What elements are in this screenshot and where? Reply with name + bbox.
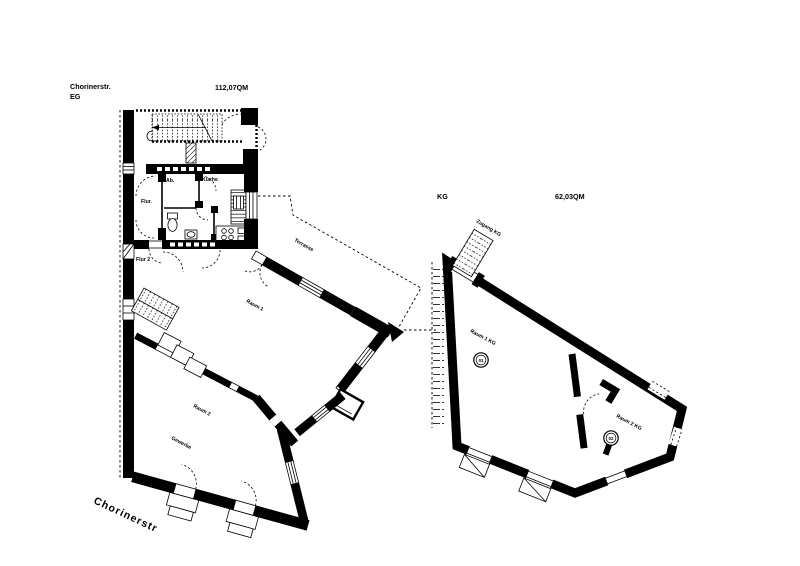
eg-floor-title: EG — [70, 92, 81, 101]
eg-divider-wall-2 — [253, 395, 298, 447]
entrance-door-swing — [176, 464, 201, 489]
flur-door-swing — [136, 176, 156, 196]
east-window — [246, 192, 257, 219]
eg-raum1-wall-b2 — [295, 393, 345, 436]
toilet-fixture — [168, 213, 178, 231]
stair-stub — [186, 143, 196, 163]
eg-stairwell-block — [136, 108, 266, 171]
kg-left-hatch — [432, 262, 444, 428]
kg-area-label: 62,03QM — [555, 192, 585, 201]
eg-flur2-stair — [131, 288, 179, 330]
eg-street-name: Chorinerstr — [92, 495, 160, 535]
floorplan-canvas: Chorinerstr. EG 112,07QM — [0, 0, 800, 566]
kg-plan: KG 62,03QM Zugang KG — [432, 192, 685, 502]
kg-floor-title: KG — [437, 192, 448, 201]
entry-door-swing — [258, 127, 266, 151]
eg-service-rooms — [136, 174, 258, 248]
eg-label-terrasse: Terrasse — [293, 238, 314, 254]
kg-marker-02: 02 — [604, 431, 618, 445]
eg-window-band — [146, 164, 258, 174]
kg-marker-01: 01 — [474, 353, 488, 367]
kg-marker-02-number: 02 — [608, 436, 614, 441]
floorplan-page: Chorinerstr. EG 112,07QM — [0, 0, 800, 566]
kg-marker-01-number: 01 — [478, 358, 484, 363]
eg-raum1-wall-a — [242, 249, 393, 350]
eg-stair-hatching — [147, 114, 222, 141]
eg-label-flur: Flur. — [141, 199, 153, 205]
eg-label-kueche: Küche — [202, 177, 218, 183]
bath-door-swing — [196, 208, 208, 220]
eg-service-bottom-wall — [134, 240, 258, 263]
eg-street-wall — [120, 110, 134, 478]
eg-raum1-wall-b — [336, 324, 392, 393]
sink-fixture — [185, 230, 197, 239]
eg-street-title: Chorinerstr. — [70, 82, 111, 91]
eg-label-raum1: Raum 1 — [245, 299, 264, 313]
eg-label-ab: Ab. — [166, 178, 175, 184]
eg-label-gewerbe: Gewerbe — [170, 435, 192, 451]
eg-plan: Chorinerstr. EG 112,07QM — [70, 82, 436, 551]
eg-area-label: 112,07QM — [215, 83, 248, 92]
eg-label-flur2: Flur 2 — [136, 257, 150, 263]
eg-label-raum2: Raum 2 — [192, 403, 211, 417]
entrance-door-swing — [236, 481, 261, 506]
eg-divider-wall — [132, 321, 263, 404]
